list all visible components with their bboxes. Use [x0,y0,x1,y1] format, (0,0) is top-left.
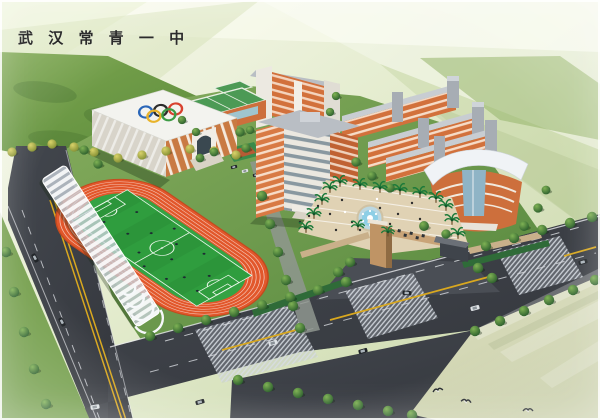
school-title: 武 汉 常 青 一 中 [18,27,189,48]
campus-aerial-rendering: 武 汉 常 青 一 中 [0,0,600,420]
vignette [0,0,600,420]
scene-canvas [0,0,600,420]
